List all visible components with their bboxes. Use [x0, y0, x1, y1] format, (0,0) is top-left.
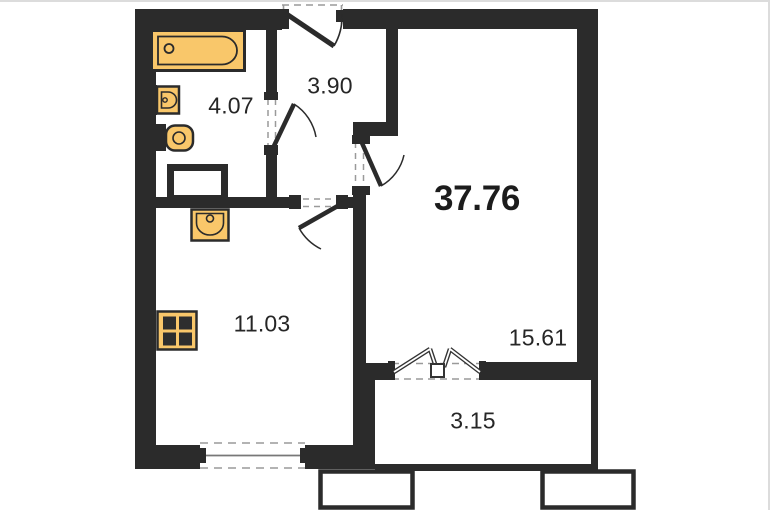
- neighbor-balcony-left: [321, 472, 413, 508]
- wall-left: [135, 9, 156, 469]
- kitchen-window-jamb-right: [300, 448, 309, 463]
- wall-bathroom-divider-upper: [266, 29, 277, 99]
- wall-balcony-right-thin: [591, 377, 598, 471]
- kitchen-sink-icon: [192, 210, 229, 241]
- total-area-label: 37.76: [434, 179, 520, 219]
- wall-top-right: [343, 9, 598, 29]
- living-room-area-label: 15.61: [509, 325, 568, 352]
- bathtub-icon: [152, 31, 245, 71]
- washbasin-icon: [150, 85, 179, 115]
- wall-kitchen-bottom-right: [305, 445, 375, 469]
- living-room-door-leaf: [362, 143, 381, 186]
- kitchen-area-label: 11.03: [234, 311, 291, 338]
- entrance-door: [281, 5, 343, 46]
- living-room-door-jamb-bottom: [352, 186, 370, 195]
- kitchen-door-arc: [299, 228, 321, 249]
- balcony-area-label: 3.15: [450, 408, 496, 435]
- balcony-door-handle: [431, 364, 444, 377]
- kitchen-door: [289, 195, 348, 249]
- bathroom-door-dashes: [268, 99, 276, 146]
- wall-kitchen-living-divider: [353, 188, 366, 363]
- wall-balcony-bottom-thin: [375, 464, 598, 471]
- hallway-area-label: 3.90: [307, 73, 353, 100]
- wall-living-balcony-right: [482, 362, 598, 380]
- bathroom-door-arc: [294, 104, 316, 137]
- wall-balcony-stub-left: [353, 363, 392, 380]
- wall-kitchen-bottom-left: [135, 445, 200, 469]
- living-room-door: [352, 135, 404, 195]
- kitchen-door-jamb-left: [289, 195, 301, 209]
- neighbor-balcony-right: [543, 472, 634, 508]
- kitchen-window-jamb-left: [197, 448, 206, 463]
- entrance-door-leaf: [285, 13, 334, 46]
- living-room-door-jamb-top: [352, 135, 370, 144]
- balcony-french-door: [388, 349, 486, 380]
- neighbor-balconies: [321, 472, 634, 508]
- bathroom-door: [264, 92, 316, 155]
- floor-plan-drawing: [0, 2, 770, 510]
- wall-top-left: [135, 9, 282, 30]
- stove-icon: [158, 312, 197, 350]
- wall-right: [577, 9, 598, 377]
- floor-plan: 4.07 3.90 37.76 11.03 15.61 3.15: [0, 0, 770, 510]
- living-room-door-arc: [381, 155, 404, 186]
- kitchen-window: [197, 443, 309, 468]
- toilet-icon: [152, 124, 193, 151]
- ventilation-shaft: [171, 168, 225, 199]
- wall-hall-living-upper: [386, 29, 398, 122]
- wall-hall-living-jog: [353, 122, 398, 136]
- bathroom-door-jamb-top: [264, 92, 278, 100]
- bathroom-area-label: 4.07: [208, 93, 254, 120]
